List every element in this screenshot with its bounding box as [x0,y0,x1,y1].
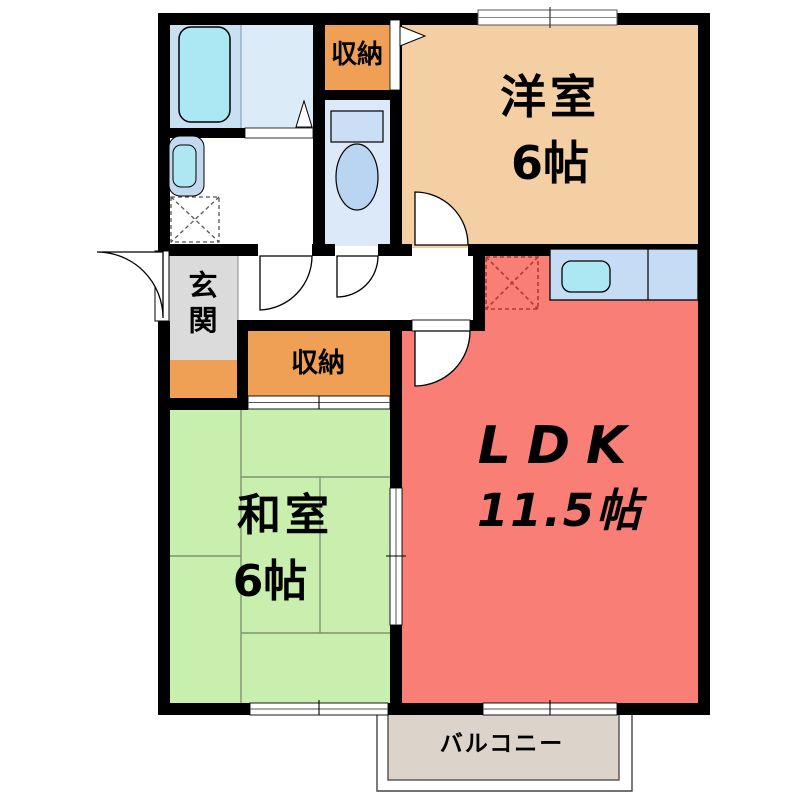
floor-plan: 洋室 6帖 LDK 11.5帖 和室 6帖 収納 収納 玄関 バルコニー [0,0,800,800]
closet-japanese-label: 収納 [278,350,358,377]
kitchen-sink-icon [562,261,610,292]
western-room-label: 洋室 [430,74,670,120]
ldk-area-east [478,248,700,708]
bathtub-icon [179,27,230,122]
closet-western-label: 収納 [317,42,397,68]
japanese-room-size: 6帖 [150,560,390,604]
washroom-door-arc [260,256,312,310]
western-room-size: 6帖 [430,140,670,186]
ldk-label: LDK [420,420,700,472]
entrance-step-area [166,360,238,400]
ldk-door-leaf [412,320,470,331]
washing-machine-space-icon [171,197,219,242]
japanese-room-label: 和室 [165,494,405,538]
front-door-arc [97,252,163,318]
japanese-room-area [163,402,395,708]
toilet-tank-icon [331,111,383,142]
washbasin-bowl-icon [173,145,196,187]
entrance-label: 玄関 [186,270,215,340]
ldk-size: 11.5帖 [420,488,700,533]
floor-plan-drawing [0,0,800,800]
balcony-label: バルコニー [402,733,602,756]
toilet-door-arc [337,256,378,297]
toilet-icon [336,144,378,210]
bathroom-door-opening [245,128,313,138]
